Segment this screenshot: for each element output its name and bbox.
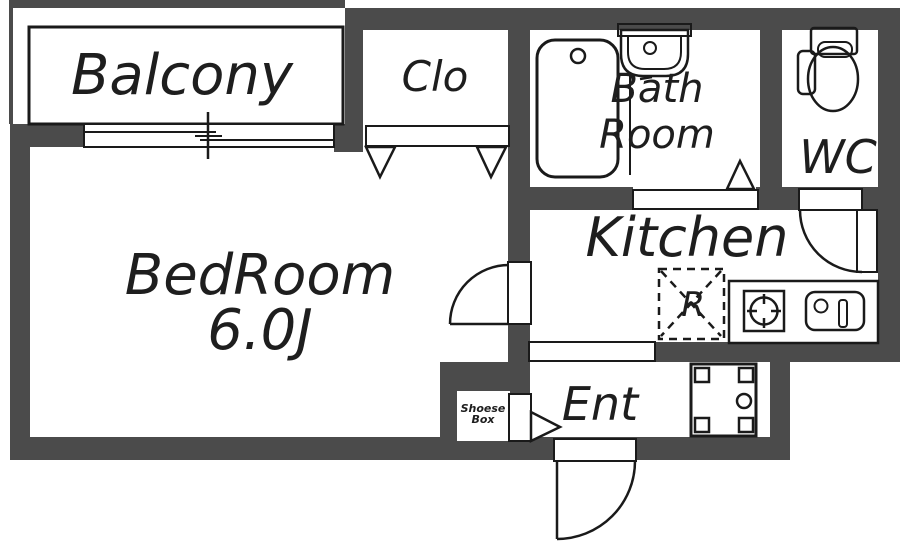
balcony-label: Balcony (71, 48, 293, 104)
shoe-box-door-icon (509, 394, 560, 441)
washing-machine-icon (691, 364, 756, 436)
shoe-box-label-line2: Box (461, 414, 506, 425)
stove-icon (744, 291, 784, 331)
wc-label: WC (799, 134, 877, 180)
closet-label: Clo (402, 56, 469, 98)
shoe-box-label: Shoese Box (461, 403, 506, 425)
entrance-label: Ent (562, 381, 638, 427)
sliding-window-icon (84, 112, 334, 159)
bedroom-label: BedRoom 6.0J (125, 248, 395, 358)
floor-plan: Balcony Clo Bath Room WC BedRoom 6.0J Ki… (0, 0, 914, 542)
bathroom-label-line1: Bath (599, 66, 715, 112)
bedroom-label-name: BedRoom (125, 248, 395, 303)
closet-door-icon (366, 126, 509, 177)
kitchen-entrance-doorway (529, 342, 655, 361)
kitchen-label: Kitchen (586, 211, 789, 265)
kitchen-sink-icon (806, 292, 864, 330)
bathroom-door-icon (727, 161, 754, 189)
toilet-icon (798, 28, 858, 111)
entrance-door-icon (554, 439, 636, 539)
refrigerator-label: R (681, 288, 705, 322)
bedroom-label-size: 6.0J (125, 303, 395, 358)
bedroom-door-icon (450, 262, 531, 324)
bathroom-label: Bath Room (599, 66, 715, 158)
bathroom-label-line2: Room (599, 112, 715, 158)
